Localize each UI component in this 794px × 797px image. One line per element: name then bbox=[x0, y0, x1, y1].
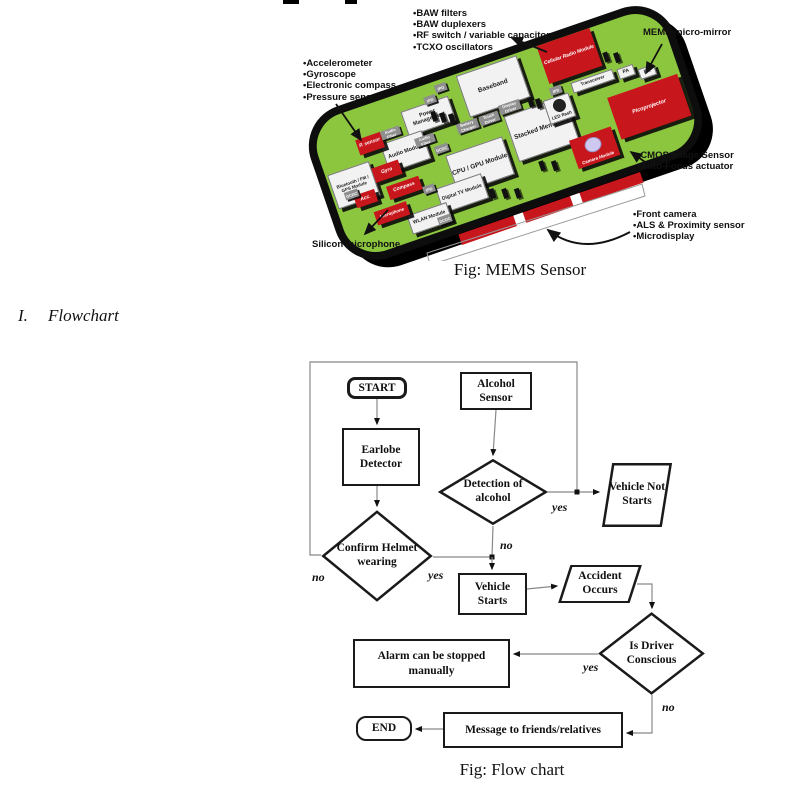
document-page: Baseband Power Management Audio Module C… bbox=[0, 0, 794, 797]
flow-node-vehicle-starts: Vehicle Starts bbox=[458, 573, 527, 615]
flow-node-accident-occurs: Accident Occurs bbox=[558, 565, 642, 603]
node-label: START bbox=[358, 381, 395, 395]
flow-node-vehicle-not-starts: Vehicle Not Starts bbox=[602, 463, 672, 527]
section-title: Flowchart bbox=[48, 306, 119, 325]
callout-arrows bbox=[300, 3, 794, 261]
node-label: END bbox=[372, 721, 396, 735]
flow-node-detection-of-alcohol: Detection of alcohol bbox=[438, 459, 548, 525]
mems-figure-caption: Fig: MEMS Sensor bbox=[430, 260, 610, 280]
section-numeral: I. bbox=[18, 306, 48, 326]
node-label: Earlobe Detector bbox=[344, 443, 418, 472]
edge-label-helmet-no: no bbox=[312, 570, 325, 585]
edge-label-conscious-yes: yes bbox=[583, 660, 598, 675]
flowchart: START Alcohol Sensor Earlobe Detector De… bbox=[300, 350, 794, 756]
node-label: Confirm Helmet wearing bbox=[329, 542, 425, 570]
node-label: Message to friends/relatives bbox=[465, 723, 601, 737]
cropped-text-fragment bbox=[283, 0, 299, 4]
flow-node-message-friends: Message to friends/relatives bbox=[443, 712, 623, 748]
node-label: Accident Occurs bbox=[564, 570, 636, 598]
flow-node-end: END bbox=[356, 716, 412, 741]
flow-node-is-driver-conscious: Is Driver Conscious bbox=[598, 612, 705, 695]
node-label: Alcohol Sensor bbox=[462, 377, 530, 406]
flow-node-alcohol-sensor: Alcohol Sensor bbox=[460, 372, 532, 410]
edge-label-helmet-yes: yes bbox=[428, 568, 443, 583]
flow-node-confirm-helmet: Confirm Helmet wearing bbox=[321, 510, 433, 602]
node-label: Alarm can be stopped manually bbox=[355, 649, 508, 678]
edge-label-detection-no: no bbox=[500, 538, 513, 553]
node-label: Vehicle Not Starts bbox=[607, 481, 667, 509]
flow-node-earlobe-detector: Earlobe Detector bbox=[342, 428, 420, 486]
node-label: Detection of alcohol bbox=[446, 478, 541, 506]
flow-node-alarm-stopped: Alarm can be stopped manually bbox=[353, 639, 510, 688]
section-heading: I.Flowchart bbox=[18, 306, 119, 326]
edge-label-conscious-no: no bbox=[662, 700, 675, 715]
mems-sensor-figure: Baseband Power Management Audio Module C… bbox=[300, 3, 794, 261]
node-label: Vehicle Starts bbox=[460, 580, 525, 609]
flow-node-start: START bbox=[347, 377, 407, 399]
edge-label-detection-yes: yes bbox=[552, 500, 567, 515]
node-label: Is Driver Conscious bbox=[605, 640, 697, 668]
flowchart-caption: Fig: Flow chart bbox=[432, 760, 592, 780]
